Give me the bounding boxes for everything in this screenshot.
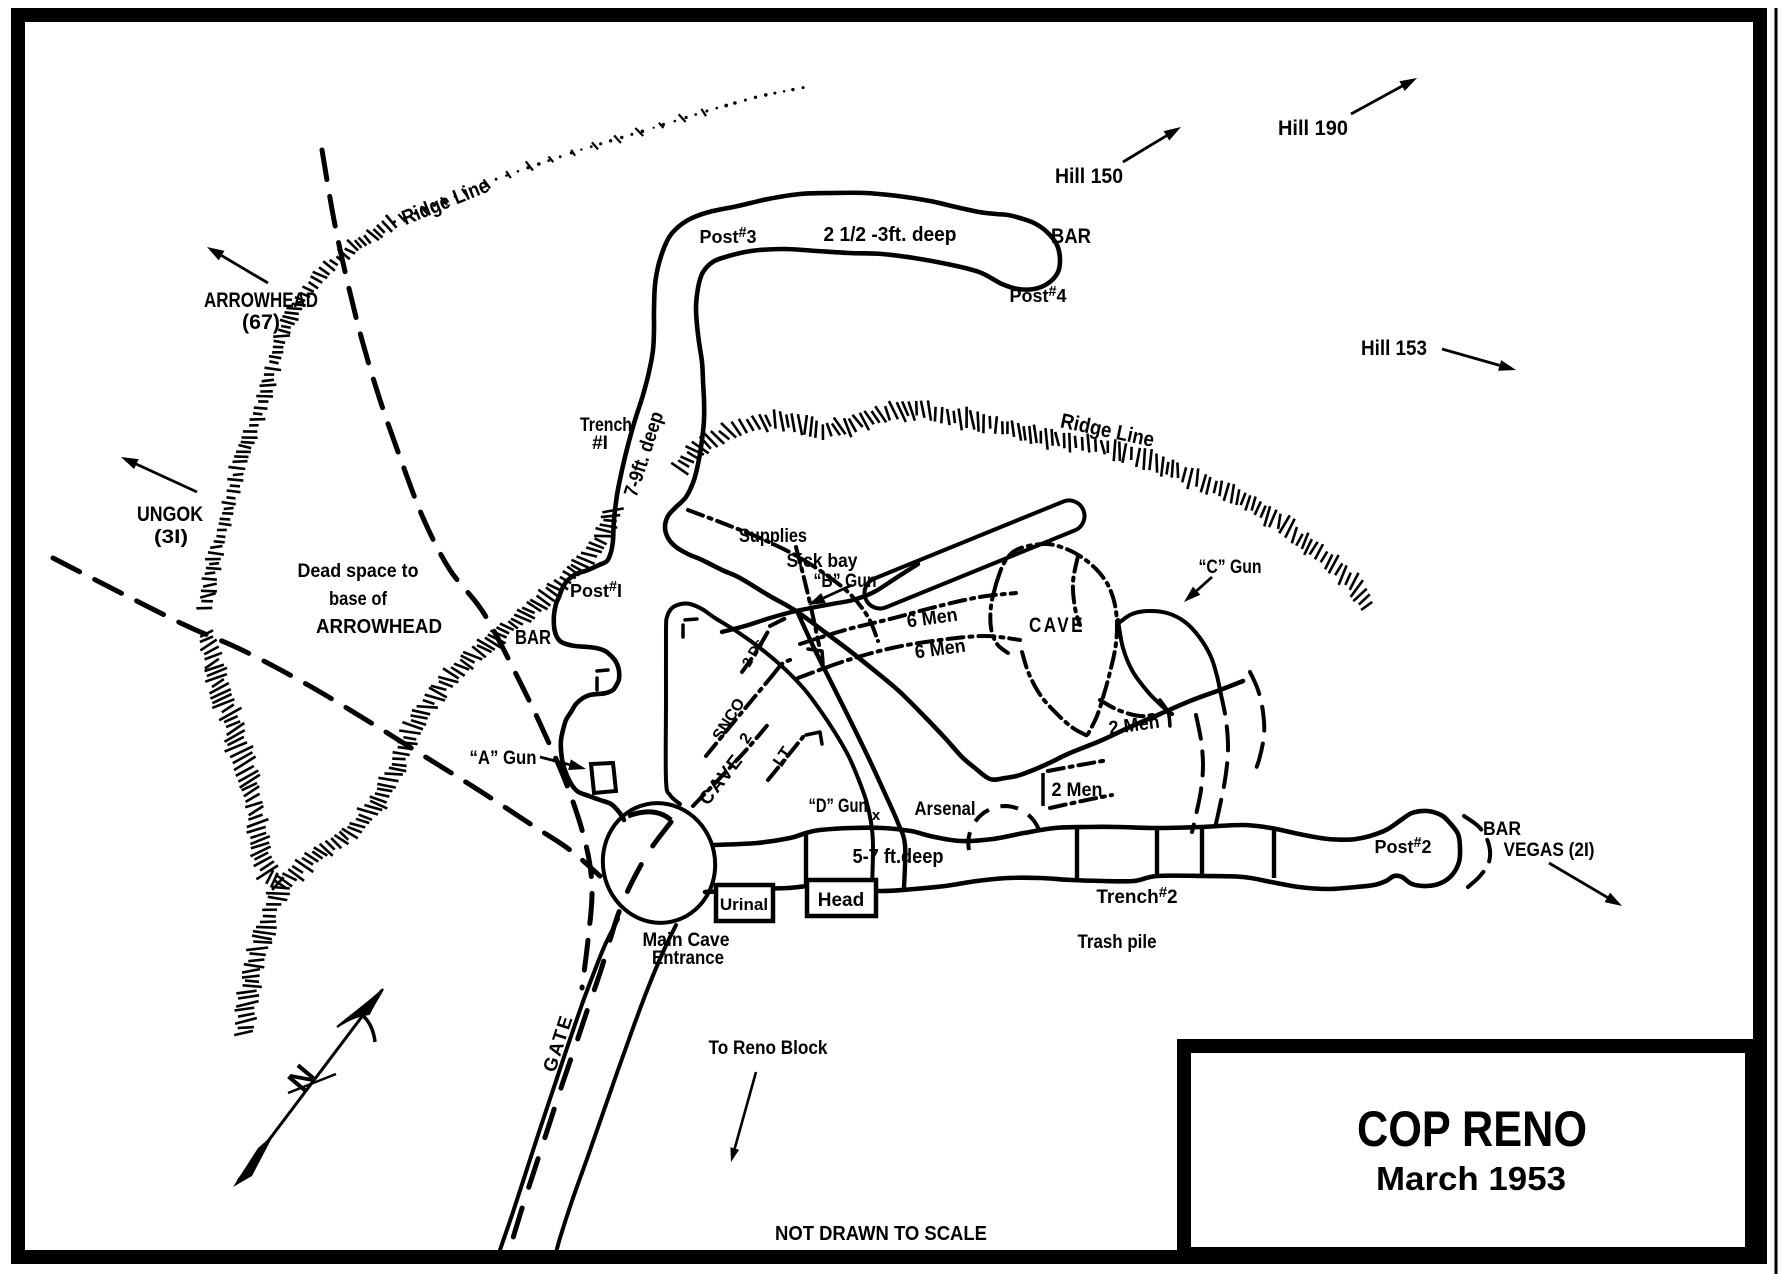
svg-text:2 1/2 -3ft. deep: 2 1/2 -3ft. deep (824, 224, 957, 246)
svg-text:x: x (872, 807, 881, 824)
svg-text:CAVE: CAVE (1029, 614, 1085, 637)
svg-text:#I: #I (592, 433, 608, 454)
svg-text:Hill 150: Hill 150 (1055, 165, 1123, 188)
svg-text:Entrance: Entrance (652, 948, 724, 969)
svg-text:“C” Gun: “C” Gun (1199, 557, 1262, 578)
svg-text:UNGOK: UNGOK (137, 503, 203, 526)
svg-text:ARROWHEAD: ARROWHEAD (204, 289, 318, 312)
svg-text:BAR: BAR (1483, 819, 1521, 840)
svg-text:Sick bay: Sick bay (787, 551, 858, 572)
svg-text:VEGAS (2I): VEGAS (2I) (1504, 840, 1595, 861)
svg-text:Trash pile: Trash pile (1078, 932, 1157, 953)
svg-text:“B” Gun: “B” Gun (814, 571, 877, 592)
svg-text:(3I): (3I) (154, 527, 188, 548)
svg-text:Head: Head (818, 890, 864, 911)
svg-text:NOT DRAWN TO SCALE: NOT DRAWN TO SCALE (775, 1223, 987, 1245)
svg-text:Dead space to: Dead space to (298, 561, 419, 582)
svg-text:BAR: BAR (1051, 225, 1091, 248)
svg-text:5-7 ft.deep: 5-7 ft.deep (853, 846, 944, 868)
svg-text:base of: base of (329, 589, 388, 610)
svg-text:Hill 190: Hill 190 (1278, 117, 1348, 140)
svg-text:COP RENO: COP RENO (1357, 1101, 1587, 1157)
svg-text:ARROWHEAD: ARROWHEAD (316, 616, 442, 638)
svg-text:Post#3: Post#3 (699, 225, 756, 247)
svg-text:Hill 153: Hill 153 (1361, 337, 1427, 360)
svg-text:To Reno Block: To Reno Block (709, 1038, 828, 1059)
svg-text:(67): (67) (242, 311, 280, 334)
svg-text:Post#4: Post#4 (1009, 284, 1066, 306)
svg-text:“A” Gun: “A” Gun (470, 748, 537, 769)
svg-text:BAR: BAR (515, 627, 551, 649)
svg-text:Supplies: Supplies (739, 526, 807, 547)
svg-text:Arsenal: Arsenal (915, 799, 976, 820)
svg-text:March 1953: March 1953 (1376, 1160, 1566, 1197)
svg-text:Post#2: Post#2 (1374, 835, 1431, 857)
svg-text:“D” Gun: “D” Gun (809, 796, 868, 817)
svg-text:Urinal: Urinal (720, 895, 768, 914)
svg-text:2 Men: 2 Men (1052, 780, 1103, 801)
